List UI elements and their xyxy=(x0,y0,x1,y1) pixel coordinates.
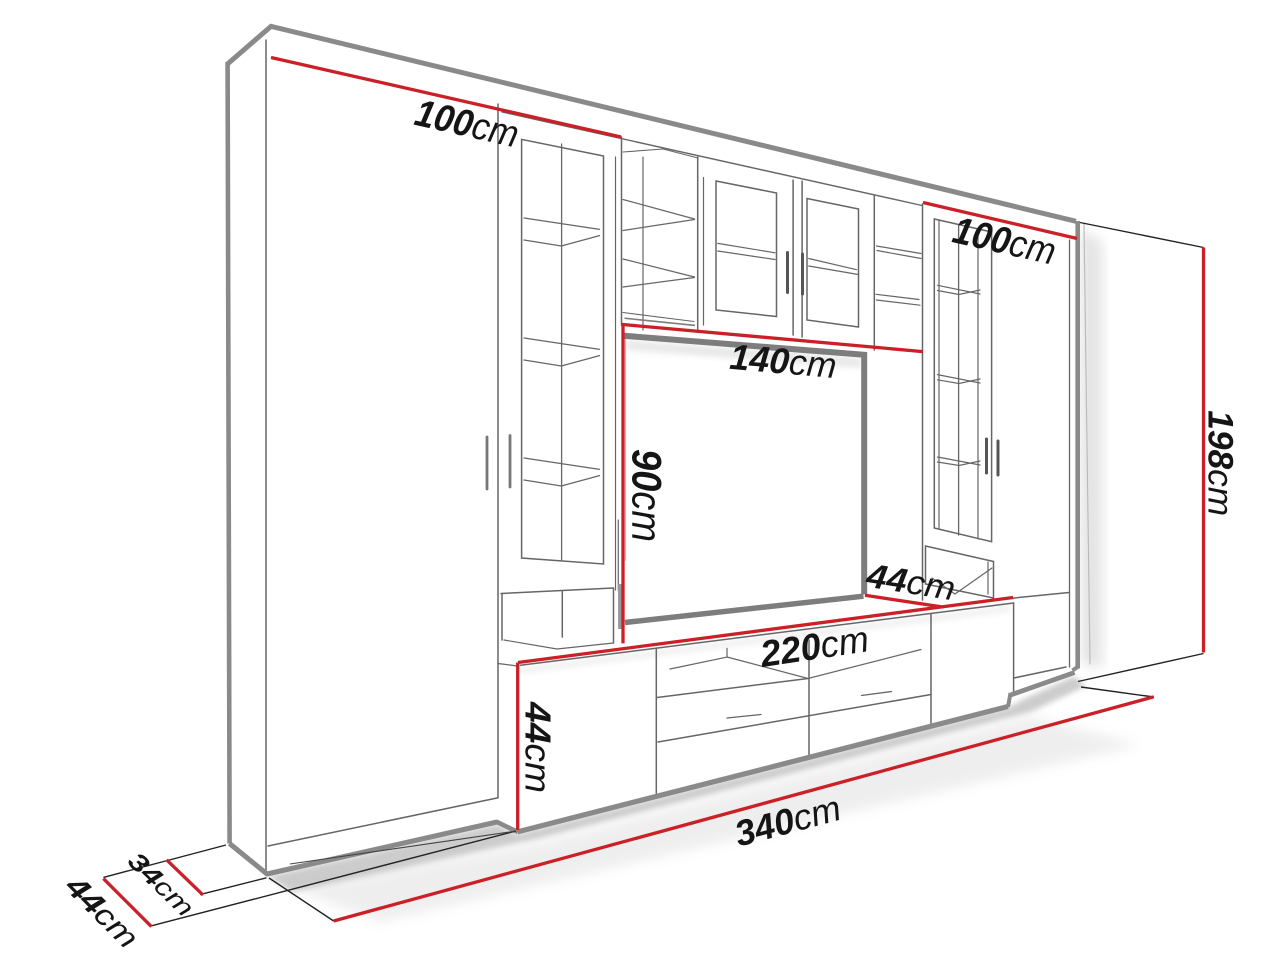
svg-text:100cm: 100cm xyxy=(411,92,523,156)
svg-text:44cm: 44cm xyxy=(58,869,144,955)
svg-text:198cm: 198cm xyxy=(1201,410,1240,516)
svg-text:90cm: 90cm xyxy=(624,449,671,542)
svg-text:140cm: 140cm xyxy=(728,336,838,386)
svg-text:100cm: 100cm xyxy=(949,210,1060,274)
svg-text:44cm: 44cm xyxy=(517,701,558,793)
svg-text:44cm: 44cm xyxy=(863,557,958,609)
